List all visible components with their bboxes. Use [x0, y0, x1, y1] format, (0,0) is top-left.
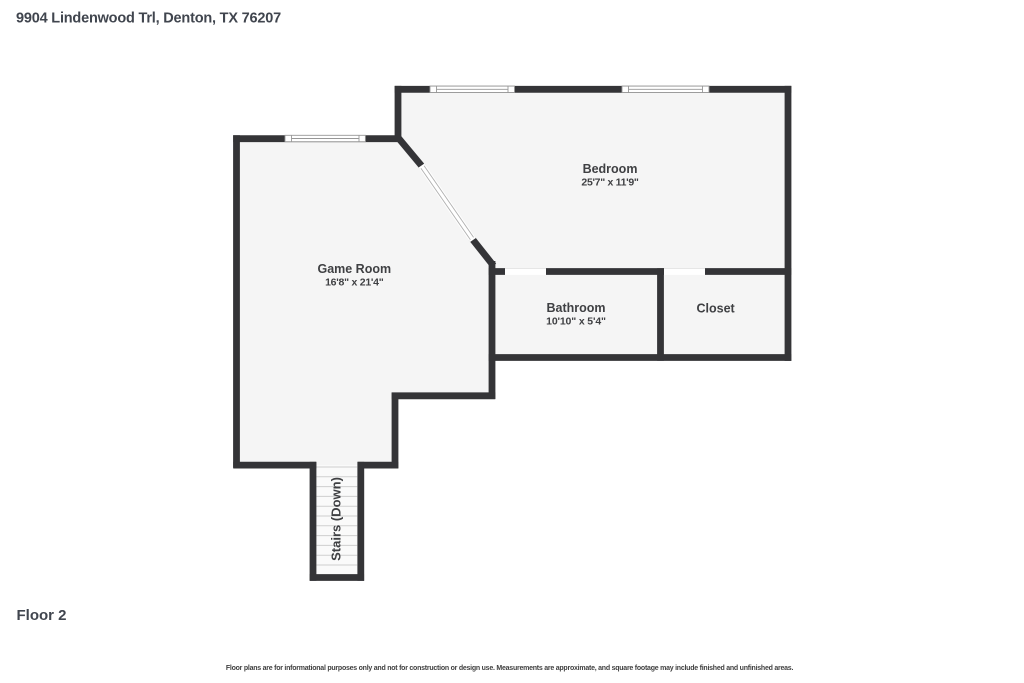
- svg-text:16'8" x 21'4": 16'8" x 21'4": [325, 277, 384, 289]
- svg-text:Closet: Closet: [696, 302, 735, 316]
- svg-text:Game Room: Game Room: [317, 262, 391, 276]
- svg-text:Bathroom: Bathroom: [546, 301, 605, 315]
- svg-text:10'10" x 5'4": 10'10" x 5'4": [546, 316, 606, 328]
- svg-text:9904 Lindenwood Trl, Denton, T: 9904 Lindenwood Trl, Denton, TX 76207: [16, 11, 281, 27]
- svg-text:Bedroom: Bedroom: [583, 162, 638, 176]
- svg-text:Stairs (Down): Stairs (Down): [329, 477, 344, 561]
- svg-text:Floor 2: Floor 2: [17, 607, 67, 624]
- svg-text:Floor plans are for informatio: Floor plans are for informational purpos…: [226, 665, 794, 672]
- svg-text:25'7" x 11'9": 25'7" x 11'9": [581, 177, 639, 189]
